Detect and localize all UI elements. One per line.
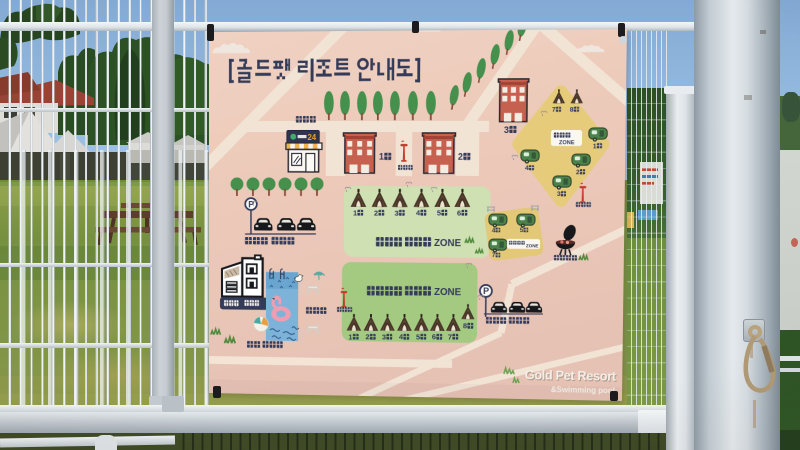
svg-text:3: 3 [557, 191, 561, 198]
svg-text:24: 24 [307, 133, 316, 142]
svg-text:7: 7 [552, 106, 556, 113]
svg-text:7: 7 [492, 253, 495, 259]
svg-text:5: 5 [437, 208, 441, 217]
svg-text:4: 4 [525, 165, 529, 172]
svg-text:ZONE: ZONE [434, 287, 461, 299]
svg-text:8: 8 [463, 321, 467, 330]
svg-text:1: 1 [348, 332, 352, 341]
svg-text:3: 3 [394, 208, 398, 217]
svg-text:7: 7 [448, 332, 452, 341]
svg-text:8: 8 [570, 106, 574, 113]
svg-text:3: 3 [382, 332, 386, 341]
svg-text:6: 6 [457, 208, 461, 217]
svg-text:2: 2 [374, 208, 378, 217]
svg-text:ZONE: ZONE [559, 140, 575, 146]
svg-text:1: 1 [593, 143, 597, 150]
svg-text:5: 5 [416, 332, 420, 341]
svg-text:2: 2 [576, 169, 580, 176]
svg-text:3: 3 [504, 125, 509, 135]
svg-text:2: 2 [365, 332, 369, 341]
svg-text:6: 6 [432, 332, 436, 341]
svg-text:2: 2 [458, 151, 463, 161]
svg-text:ZONE: ZONE [434, 238, 461, 249]
svg-text:ZONE: ZONE [526, 243, 539, 248]
svg-text:1: 1 [353, 208, 357, 217]
svg-text:1: 1 [379, 152, 384, 162]
svg-text:P: P [483, 286, 489, 296]
svg-text:Gold Pet Resort: Gold Pet Resort [525, 368, 616, 384]
